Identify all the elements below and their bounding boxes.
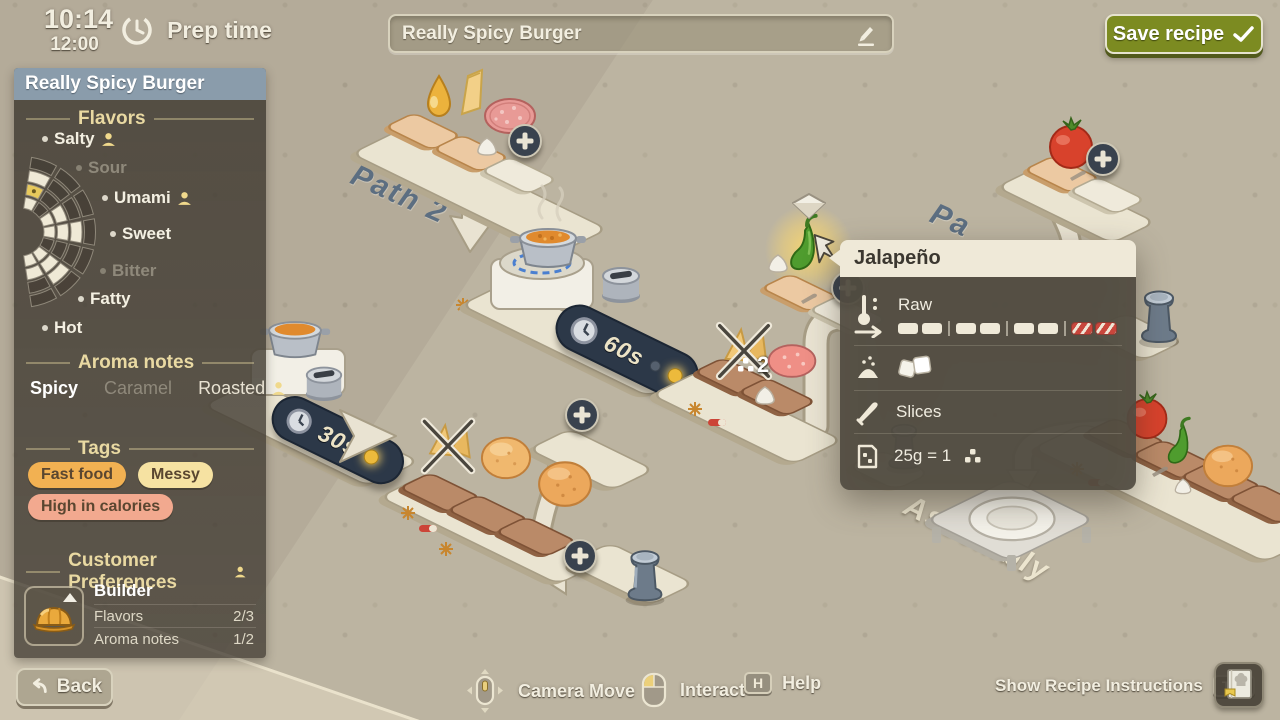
recipe-summary-panel: Really Spicy Burger Flavors Salty Sour U… — [14, 68, 266, 658]
customer-name: Builder — [94, 580, 256, 604]
bun-ingredient[interactable] — [535, 454, 595, 510]
assembly-plate[interactable] — [962, 487, 1062, 549]
triangle-marker-icon — [63, 593, 77, 602]
person-icon — [177, 191, 192, 206]
garlic-mound — [1172, 476, 1194, 496]
table-leg — [1007, 555, 1016, 571]
prep-time-clock: 10:14 12:00 Prep time — [44, 6, 272, 54]
measure-label: 25g = 1 — [894, 446, 951, 466]
knife-mark-decor — [1150, 464, 1172, 478]
person-icon — [234, 564, 246, 580]
prep-style-label: Slices — [896, 402, 941, 422]
knife-icon — [854, 398, 882, 426]
bun-ingredient[interactable] — [478, 430, 534, 482]
check-icon — [1233, 25, 1255, 43]
measure-jug-icon — [854, 441, 880, 471]
tag-badge: Messy — [138, 462, 213, 488]
spice-decor-icon — [401, 506, 415, 520]
clock-icon — [117, 10, 157, 50]
knife-mark-decor — [799, 291, 821, 305]
tag-badge: High in calories — [28, 494, 173, 520]
game-screen: Path 2 Pa Assembly — [0, 0, 1280, 720]
aroma-note: Roasted — [198, 378, 286, 399]
ingredient-tooltip: Jalapeño Raw — [840, 240, 1136, 490]
bun-ingredient[interactable] — [1200, 438, 1256, 490]
back-arrow-icon — [27, 676, 49, 698]
prep-time-label: Prep time — [167, 17, 272, 44]
edit-name-button[interactable] — [852, 18, 880, 50]
aroma-note: Caramel — [104, 378, 172, 399]
recipe-name-field[interactable] — [388, 14, 894, 53]
doneness-bar — [898, 321, 1116, 336]
flavor-label-bitter: Bitter — [100, 261, 156, 281]
pieces-icon — [738, 358, 754, 372]
cook-timer-value: 60s — [600, 329, 649, 371]
person-icon — [101, 132, 116, 147]
help-key-badge: H — [744, 672, 772, 694]
oil-drop-ingredient[interactable] — [422, 72, 456, 120]
camera-move-hint: Camera Move — [462, 668, 635, 714]
pin-lever[interactable] — [622, 544, 668, 606]
tag-badge: Fast food — [28, 462, 126, 488]
mouse-left-click-icon — [638, 670, 670, 710]
pill-decor-icon — [419, 524, 437, 534]
recipe-book-icon — [1222, 667, 1256, 703]
station-buns[interactable] — [383, 398, 728, 633]
flavor-label-fatty: Fatty — [78, 289, 131, 309]
jalapeno-ingredient[interactable] — [1164, 412, 1198, 470]
customer-stat-row: Aroma notes1/2 — [94, 627, 256, 650]
back-button[interactable]: Back — [16, 668, 113, 706]
customer-avatar — [24, 586, 84, 646]
timer-dial-icon — [280, 403, 317, 440]
path-floor-label-partial: Pa — [925, 197, 976, 245]
doneness-icon — [854, 292, 884, 338]
panel-title: Really Spicy Burger — [14, 68, 266, 100]
table-leg — [1082, 527, 1091, 543]
soup-pot[interactable] — [508, 212, 588, 274]
flavor-label-hot: Hot — [42, 318, 82, 338]
stove-knob[interactable] — [302, 356, 346, 402]
timer-dial-icon — [564, 311, 604, 351]
add-ingredient-button[interactable] — [563, 539, 597, 573]
tags-section-title: Tags — [26, 438, 254, 460]
interact-hint: Interact — [638, 670, 745, 710]
total-time: 12:00 — [36, 35, 113, 54]
knife-mark-decor — [1068, 168, 1090, 182]
flavor-label-umami: Umami — [102, 188, 192, 208]
spice-decor-icon — [439, 542, 453, 556]
recipe-name-input[interactable] — [402, 23, 852, 45]
flavor-label-salty: Salty — [42, 129, 116, 149]
pin-lever[interactable] — [1136, 284, 1182, 348]
recipe-book-button[interactable] — [1214, 662, 1264, 708]
salami-ingredient[interactable] — [764, 340, 820, 382]
add-ingredient-button[interactable] — [508, 124, 542, 158]
aroma-note: Spicy — [30, 378, 78, 399]
add-ingredient-button[interactable] — [565, 398, 599, 432]
flavor-label-sour: Sour — [76, 158, 127, 178]
hard-hat-icon — [31, 599, 77, 633]
station-tomato[interactable] — [1020, 108, 1210, 248]
flavor-label-sweet: Sweet — [110, 224, 171, 244]
mouse-move-icon — [462, 668, 508, 714]
help-hint: H Help — [744, 672, 821, 694]
customer-stat-row: Flavors2/3 — [94, 604, 256, 627]
person-icon — [271, 381, 286, 396]
save-recipe-button[interactable]: Save recipe — [1105, 14, 1263, 54]
pencil-icon — [854, 20, 878, 48]
garlic-mound — [752, 384, 778, 406]
stove-knob[interactable] — [598, 256, 644, 304]
pieces-icon — [965, 449, 981, 463]
panel-button-gray[interactable] — [649, 358, 664, 373]
add-ingredient-button[interactable] — [1086, 142, 1120, 176]
selection-diamond-marker — [792, 193, 826, 219]
table-leg — [932, 527, 941, 543]
cook-state-label: Raw — [898, 295, 1116, 315]
customer-preference-card: Builder Flavors2/3 Aroma notes1/2 — [24, 580, 256, 656]
flavors-section-title: Flavors — [26, 108, 254, 130]
slices-preview-icon — [896, 353, 936, 383]
salt-mound — [474, 136, 500, 156]
crossed-out-cheese[interactable] — [415, 412, 481, 478]
seasoning-icon — [854, 354, 882, 382]
elapsed-time: 10:14 — [44, 6, 113, 33]
tooltip-title: Jalapeño — [840, 240, 1136, 277]
aroma-section-title: Aroma notes — [26, 352, 254, 374]
